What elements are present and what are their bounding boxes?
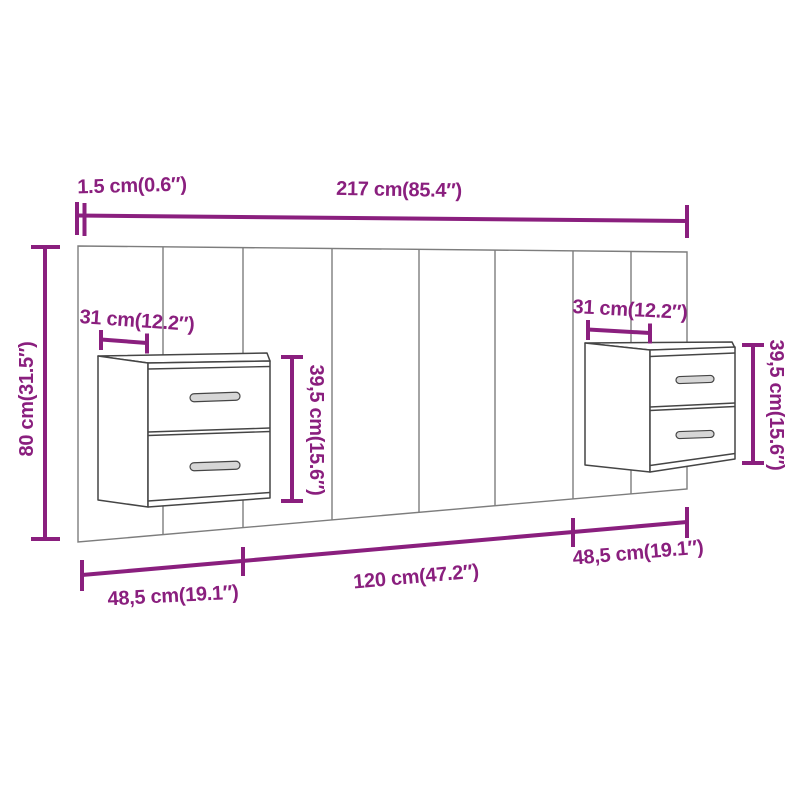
product-dimension-diagram: 1.5 cm(0.6″) 217 cm(85.4″) 80 cm(31.5″) …	[0, 0, 800, 800]
left-bedside-cabinet	[98, 353, 270, 507]
drawer-handle	[676, 375, 714, 383]
right-cabinet-width-dim-line	[588, 330, 650, 334]
drawer-handle	[190, 461, 240, 471]
left-cabinet-width-dim-line	[101, 340, 147, 344]
dim-label-panel-thickness: 1.5 cm(0.6″)	[77, 175, 187, 198]
drawer-handle	[676, 430, 714, 438]
left-cabinet-side-face	[98, 356, 148, 507]
right-cabinet-side-face	[585, 343, 650, 472]
drawer-handle	[190, 392, 240, 402]
diagram-canvas	[0, 0, 800, 800]
dim-label-total-width: 217 cm(85.4″)	[336, 179, 462, 201]
dim-label-total-height: 80 cm(31.5″)	[17, 342, 37, 457]
right-bedside-cabinet	[585, 342, 735, 472]
dim-label-right-cabinet-height: 39,5 cm(15.6″)	[766, 339, 786, 470]
total-width-dim-line	[77, 216, 687, 222]
dim-label-left-cabinet-height: 39,5 cm(15.6″)	[306, 364, 326, 495]
